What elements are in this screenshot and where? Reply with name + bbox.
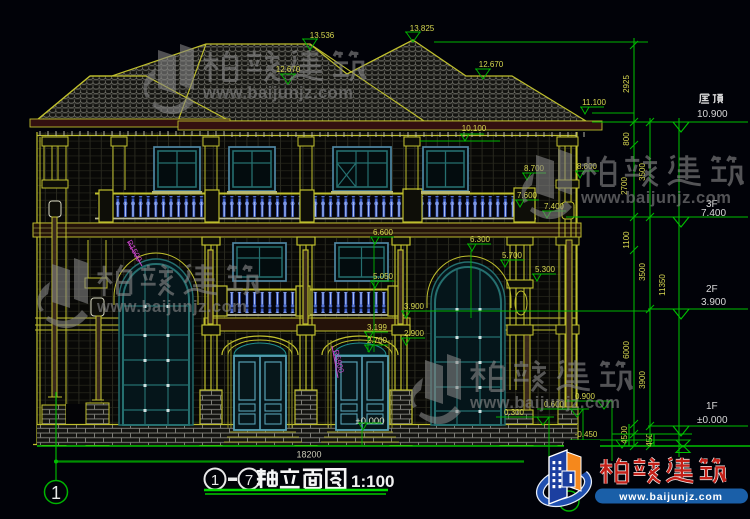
svg-text:11350: 11350 xyxy=(658,274,667,296)
svg-text:3.900: 3.900 xyxy=(404,302,425,311)
svg-text:2925: 2925 xyxy=(622,75,631,93)
svg-text:5.300: 5.300 xyxy=(535,265,556,274)
svg-text:3900: 3900 xyxy=(638,371,647,389)
svg-text:10.900: 10.900 xyxy=(697,109,728,120)
svg-text:11.100: 11.100 xyxy=(582,98,606,107)
svg-text:-0.450: -0.450 xyxy=(575,430,598,439)
svg-text:5.700: 5.700 xyxy=(502,251,523,260)
svg-text:2F: 2F xyxy=(706,284,718,295)
svg-text:3.900: 3.900 xyxy=(701,297,726,308)
svg-text:6000: 6000 xyxy=(622,341,631,359)
svg-text:12.670: 12.670 xyxy=(479,60,504,69)
svg-text:3500: 3500 xyxy=(638,263,647,281)
svg-text:6.300: 6.300 xyxy=(470,235,491,244)
svg-text:1:100: 1:100 xyxy=(351,472,394,491)
svg-text:7: 7 xyxy=(245,472,253,489)
svg-text:1100: 1100 xyxy=(622,231,631,249)
svg-text:7.400: 7.400 xyxy=(701,208,726,219)
svg-text:1F: 1F xyxy=(706,401,718,412)
svg-text:2.900: 2.900 xyxy=(404,329,425,338)
svg-text:1: 1 xyxy=(51,483,61,503)
svg-text:1: 1 xyxy=(211,472,219,489)
svg-text:www.baijunjz.com: www.baijunjz.com xyxy=(618,491,722,503)
svg-text:18200: 18200 xyxy=(296,450,321,460)
svg-text:2.700: 2.700 xyxy=(367,336,388,345)
svg-text:12.670: 12.670 xyxy=(276,65,301,74)
svg-text:6.600: 6.600 xyxy=(373,228,394,237)
svg-text:10.100: 10.100 xyxy=(462,124,487,133)
svg-text:800: 800 xyxy=(622,132,631,146)
svg-text:7.600: 7.600 xyxy=(517,191,538,200)
svg-text:±0.000: ±0.000 xyxy=(697,415,728,426)
svg-text:3.199: 3.199 xyxy=(367,323,388,332)
svg-text:5.050: 5.050 xyxy=(373,272,394,281)
